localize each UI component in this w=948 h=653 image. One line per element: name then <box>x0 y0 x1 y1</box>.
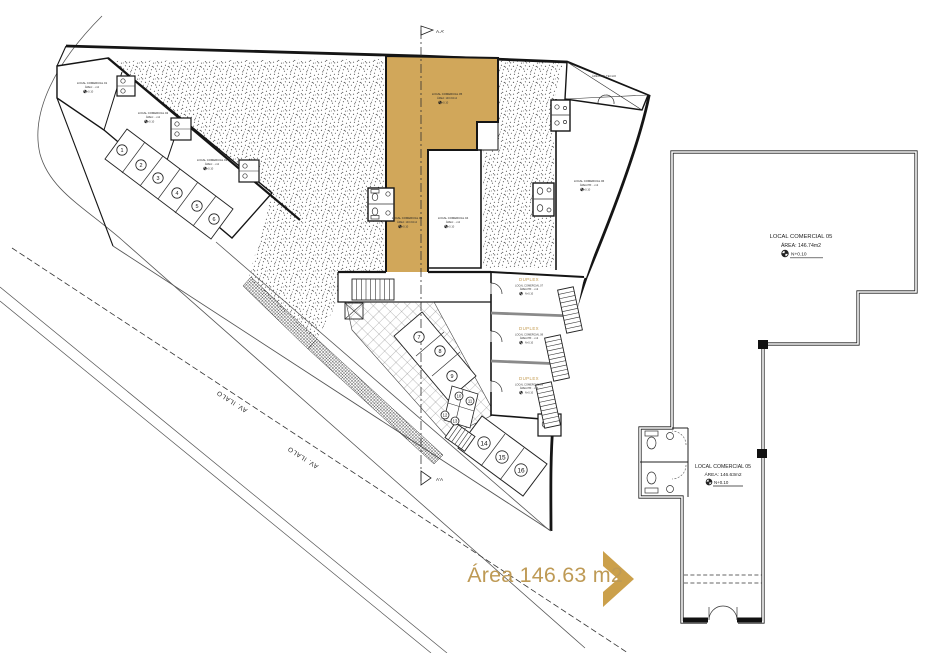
svg-text:14: 14 <box>480 440 488 447</box>
svg-text:9: 9 <box>450 374 453 380</box>
bathroom-strip-2 <box>171 118 191 140</box>
svg-text:N+0.10: N+0.10 <box>525 342 534 345</box>
center-rooms <box>386 56 498 287</box>
svg-text:4: 4 <box>175 191 178 197</box>
svg-text:N+0.10: N+0.10 <box>791 252 807 258</box>
parking-stall-6: 6 <box>209 214 219 224</box>
svg-text:LOCAL COMERCIAL 09: LOCAL COMERCIAL 09 <box>515 383 544 387</box>
svg-text:3: 3 <box>156 176 159 182</box>
svg-text:1: 1 <box>120 148 123 154</box>
svg-text:7: 7 <box>417 335 420 341</box>
svg-text:LOCAL COMERCIAL 05: LOCAL COMERCIAL 05 <box>432 92 463 96</box>
parking-stall-1: 1 <box>117 145 127 155</box>
room-04 <box>428 150 481 268</box>
parking-stall-12: 12 <box>441 411 449 419</box>
svg-text:ÁREA PB: ...m2: ÁREA PB: ...m2 <box>520 336 539 340</box>
svg-text:ÁREA: 146.74m2: ÁREA: 146.74m2 <box>781 242 821 249</box>
svg-text:5: 5 <box>195 204 198 210</box>
svg-text:N+0.10: N+0.10 <box>525 293 534 296</box>
svg-text:6: 6 <box>212 217 215 223</box>
detail-plan: LOCAL COMERCIAL 05 ÁREA: 146.74m2 N+0.10… <box>640 152 916 626</box>
svg-text:LOCAL COMERCIAL 05: LOCAL COMERCIAL 05 <box>392 216 423 220</box>
svg-text:LOCAL COMERCIAL 05: LOCAL COMERCIAL 05 <box>695 464 751 470</box>
svg-text:N+0.10: N+0.10 <box>582 188 591 192</box>
parking-stall-3: 3 <box>153 173 163 183</box>
svg-text:ÁREA: 146.63m2: ÁREA: 146.63m2 <box>437 96 458 100</box>
parking-stall-11: 11 <box>466 397 474 405</box>
svg-text:11: 11 <box>468 399 473 404</box>
svg-text:LOCAL COMERCIAL 05: LOCAL COMERCIAL 05 <box>770 234 833 240</box>
area-caption: Área 146.63 m2 <box>448 563 623 588</box>
svg-text:LOCAL COMERCIAL 02: LOCAL COMERCIAL 02 <box>138 111 169 115</box>
svg-text:N+0.10: N+0.10 <box>85 90 94 94</box>
parking-stall-9: 9 <box>447 371 457 381</box>
svg-text:15: 15 <box>498 454 506 461</box>
svg-text:LOCAL COMERCIAL 08: LOCAL COMERCIAL 08 <box>515 333 544 337</box>
room-06-block: ÁREA SIN TECHO <box>556 62 648 278</box>
svg-text:ÁREA PB: ...m2: ÁREA PB: ...m2 <box>580 183 599 187</box>
svg-text:ÁREA: ...m2: ÁREA: ...m2 <box>446 220 461 224</box>
bathroom-unit-04 <box>533 183 554 216</box>
site-plan-drawing: AV. ILALO AV. ILALO <box>0 0 948 653</box>
area-caption-text: Área 146.63 m2 <box>467 563 623 587</box>
svg-text:ÁREA: ...m2: ÁREA: ...m2 <box>146 115 161 119</box>
svg-text:LOCAL COMERCIAL 06: LOCAL COMERCIAL 06 <box>574 179 605 183</box>
parking-stall-16: 16 <box>515 464 527 476</box>
bathroom-unit-05 <box>368 188 394 221</box>
parking-stall-4: 4 <box>172 188 182 198</box>
svg-text:12: 12 <box>443 413 448 418</box>
street-name-2: AV. ILALO <box>287 445 320 470</box>
floorplan-page: AV. ILALO AV. ILALO <box>0 0 948 653</box>
detail-door-gap <box>707 616 738 626</box>
parking-stall-14: 14 <box>478 437 490 449</box>
svg-text:N+0.10: N+0.10 <box>146 120 155 124</box>
svg-text:LOCAL COMERCIAL 03: LOCAL COMERCIAL 03 <box>197 158 228 162</box>
bathroom-strip-3 <box>239 160 259 182</box>
bathroom-strip-1 <box>117 76 135 96</box>
parking-stall-13: 13 <box>451 417 459 425</box>
parking-stall-5: 5 <box>192 201 202 211</box>
svg-text:10: 10 <box>457 394 462 399</box>
svg-text:ÁREA PB: ...m2: ÁREA PB: ...m2 <box>520 386 539 390</box>
svg-text:8: 8 <box>438 349 441 355</box>
svg-text:2: 2 <box>139 163 142 169</box>
svg-text:LOCAL COMERCIAL 01: LOCAL COMERCIAL 01 <box>77 81 108 85</box>
svg-text:ÁREA: ...m2: ÁREA: ...m2 <box>85 85 100 89</box>
parking-stall-7: 7 <box>414 332 424 342</box>
staircase <box>352 279 394 300</box>
svg-text:ÁREA: 146.63m2: ÁREA: 146.63m2 <box>397 220 418 224</box>
svg-text:ÁREA: 146.63m2: ÁREA: 146.63m2 <box>704 471 741 478</box>
void-area-label: ÁREA SIN TECHO <box>592 74 617 78</box>
svg-text:N+0.10: N+0.10 <box>446 225 455 229</box>
svg-text:N+0.10: N+0.10 <box>400 225 409 229</box>
svg-text:N+0.10: N+0.10 <box>205 167 214 171</box>
svg-text:N+0.10: N+0.10 <box>714 480 729 485</box>
parking-stall-15: 15 <box>496 451 508 463</box>
parking-stall-2: 2 <box>136 160 146 170</box>
column-upper <box>758 340 768 349</box>
svg-text:LOCAL COMERCIAL 04: LOCAL COMERCIAL 04 <box>438 216 469 220</box>
parking-stall-10: 10 <box>455 392 463 400</box>
svg-text:DUPLEX: DUPLEX <box>519 326 539 331</box>
parking-stall-8: 8 <box>435 346 445 356</box>
column-lower <box>757 449 767 458</box>
svg-text:16: 16 <box>517 467 525 474</box>
svg-text:13: 13 <box>453 419 458 424</box>
svg-text:DUPLEX: DUPLEX <box>519 376 539 381</box>
section-bottom-label: A'A <box>436 477 444 482</box>
section-top-label: A.A' <box>436 29 444 34</box>
svg-text:ÁREA: ...m2: ÁREA: ...m2 <box>205 162 220 166</box>
svg-text:N+0.10: N+0.10 <box>525 392 534 395</box>
svg-text:ÁREA PB: ...m2: ÁREA PB: ...m2 <box>520 287 539 291</box>
svg-text:LOCAL COMERCIAL 07: LOCAL COMERCIAL 07 <box>515 284 544 288</box>
svg-text:N+0.10: N+0.10 <box>440 101 449 105</box>
svg-text:DUPLEX: DUPLEX <box>519 277 539 282</box>
bathroom-unit-06 <box>551 100 570 131</box>
